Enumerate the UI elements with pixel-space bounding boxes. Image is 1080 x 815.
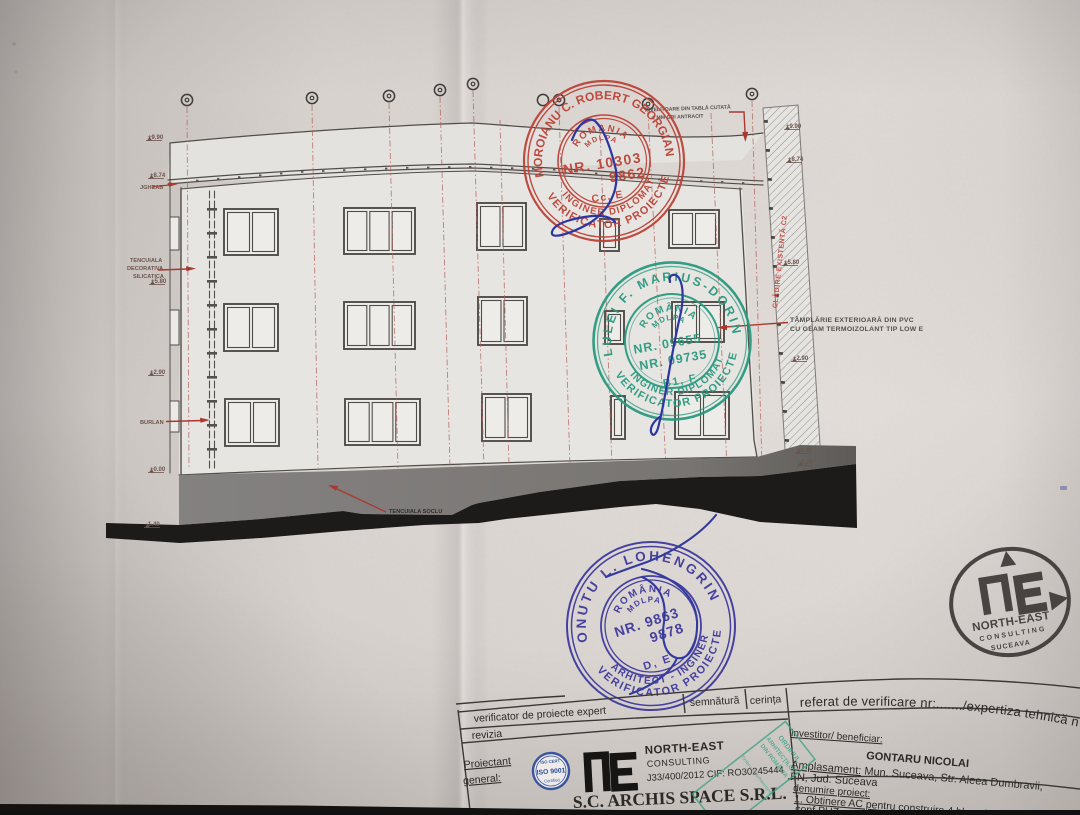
svg-text:revizia: revizia — [471, 728, 502, 742]
svg-text:CU GEAM TERMOIZOLANT TIP LOW E: CU GEAM TERMOIZOLANT TIP LOW E — [790, 326, 924, 333]
svg-text:SILICATICA: SILICATICA — [133, 274, 164, 280]
svg-text:TENCUIALA SOCLU: TENCUIALA SOCLU — [389, 509, 442, 515]
svg-text:DECORATIVA: DECORATIVA — [127, 266, 163, 272]
svg-text:TÂMPLĂRIE EXTERIOARĂ DIN PVC: TÂMPLĂRIE EXTERIOARĂ DIN PVC — [790, 315, 914, 324]
svg-text:TENCUIALA: TENCUIALA — [130, 258, 162, 264]
svg-text:BURLAN: BURLAN — [140, 420, 164, 426]
svg-text:cerința: cerința — [750, 693, 782, 707]
